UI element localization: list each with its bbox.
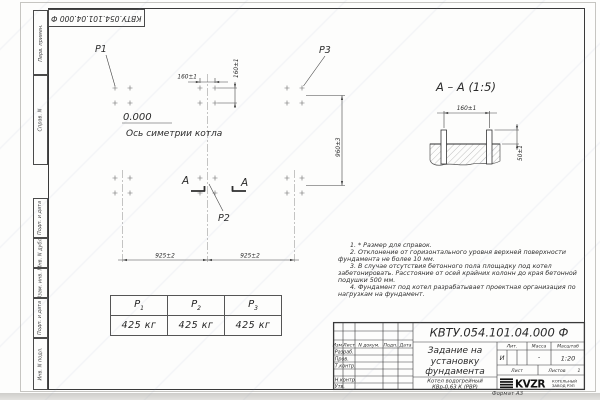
- side-label: Перв. примен.: [38, 24, 44, 62]
- svg-text:925±2: 925±2: [240, 254, 260, 260]
- svg-text:Задание на: Задание на: [428, 346, 483, 356]
- side-label: Подп. и дата: [38, 201, 44, 235]
- kvzr-logo: KVZR КОТЕЛЬНЫЙ ЗАВОД РЭП: [500, 378, 577, 390]
- load-value-p3: 425 кг: [225, 316, 282, 336]
- note-3: 3. В случае отсутствия бетонного пола пл…: [338, 263, 585, 284]
- side-label: Инв. N дубл.: [38, 238, 44, 268]
- note-2: 2. Отклонение от горизонтального уровня …: [338, 249, 585, 263]
- svg-text:фундамента: фундамента: [425, 367, 485, 377]
- side-box-vzam-inv: Взам. инв. N: [33, 268, 48, 298]
- dim-row-spacing: 960±3: [306, 96, 345, 186]
- dim-column-span: 925±2 925±2: [118, 254, 299, 262]
- lit-mass-scale: Лит. Масса Масштаб И - 1:20: [500, 344, 580, 363]
- load-value-p2: 425 кг: [168, 316, 225, 336]
- side-box-inv-dubl: Инв. N дубл.: [33, 238, 48, 268]
- svg-text:Листов: Листов: [547, 368, 565, 374]
- side-label: Подп. и дата: [38, 301, 44, 335]
- svg-text:Лист: Лист: [342, 342, 355, 348]
- side-box-podp-data-2: Подп. и дата: [33, 298, 48, 338]
- svg-text:установку: установку: [430, 357, 480, 367]
- load-col-p2: Р2: [168, 296, 225, 316]
- section-title: А – А (1:5): [435, 80, 496, 94]
- svg-text:50±1: 50±1: [518, 145, 524, 161]
- side-label: Взам. инв. N: [38, 268, 44, 298]
- dim-section-spacing: 160±1: [437, 106, 497, 128]
- dim-bolt-spacing-x: 160±1: [177, 75, 228, 84]
- kvzr-logo-icon: [500, 378, 513, 388]
- load-table-header-row: Р1 Р2 Р3: [111, 296, 282, 316]
- svg-text:Р1: Р1: [95, 44, 107, 55]
- svg-text:160±1: 160±1: [177, 75, 197, 81]
- anchor-bolt-marks: [113, 86, 305, 196]
- side-label: Справ. N: [38, 109, 44, 132]
- svg-text:Масштаб: Масштаб: [557, 344, 579, 350]
- signature-roles: Разраб. Пров. Т.контр. Н.контр. Утв.: [335, 349, 356, 390]
- axis-centerlines: [123, 74, 295, 262]
- dim-bolt-spacing-y: 160±1: [218, 58, 241, 108]
- svg-text:Р3: Р3: [319, 45, 331, 56]
- section-cut-marks: А А: [181, 175, 248, 192]
- svg-text:Дата: Дата: [399, 342, 412, 348]
- load-leader-p2: Р2: [209, 184, 230, 224]
- side-box-podp-data-1: Подп. и дата: [33, 198, 48, 238]
- svg-text:Масса: Масса: [532, 344, 547, 350]
- svg-text:Лист: Лист: [510, 368, 523, 374]
- svg-text:И: И: [500, 354, 505, 362]
- svg-text:160±1: 160±1: [234, 58, 240, 78]
- drawing-sheet: КВТУ.054.101.04.000 Ф Перв. примен. Спра…: [0, 0, 600, 400]
- svg-text:Лит.: Лит.: [506, 344, 518, 350]
- load-table: Р1 Р2 Р3 425 кг 425 кг 425 кг: [110, 295, 282, 336]
- load-col-p1: Р1: [111, 296, 168, 316]
- kvzr-logo-tagline: КОТЕЛЬНЫЙ ЗАВОД РЭП: [552, 379, 577, 389]
- side-box-perv-primen: Перв. примен.: [33, 10, 48, 75]
- title-block: КВТУ.054.101.04.000 Ф Изм. Лист N докум.…: [333, 322, 585, 390]
- svg-text:Т.контр.: Т.контр.: [335, 363, 356, 369]
- load-leader-p3: Р3: [304, 45, 331, 86]
- svg-text:А: А: [240, 177, 248, 189]
- load-col-p3: Р3: [225, 296, 282, 316]
- format-note: Формат А3: [430, 391, 585, 397]
- top-stamp: КВТУ.054.101.04.000 Ф: [48, 9, 145, 27]
- revision-header-row: Изм. Лист N докум. Подп. Дата: [333, 342, 412, 348]
- sheet-row: Лист Листов 1: [510, 368, 580, 374]
- svg-text:Н.контр.: Н.контр.: [335, 377, 356, 383]
- svg-text:Р2: Р2: [218, 213, 230, 224]
- svg-text:Изм.: Изм.: [333, 342, 344, 348]
- axis-of-symmetry-label: Ось симетрии котла: [126, 129, 222, 139]
- svg-text:Утв.: Утв.: [335, 384, 345, 390]
- svg-text:-: -: [538, 353, 541, 361]
- side-label: Инв. N подл.: [38, 347, 44, 380]
- note-4: 4. Фундамент под котел разрабатывает про…: [338, 284, 585, 298]
- side-box-inv-podl: Инв. N подл.: [33, 338, 48, 390]
- svg-text:Пров.: Пров.: [335, 356, 349, 362]
- svg-text:925±2: 925±2: [155, 254, 175, 260]
- kvzr-logo-text: KVZR: [515, 379, 545, 391]
- drawing-title: Задание на установку фундамента: [425, 346, 485, 377]
- load-table-value-row: 425 кг 425 кг 425 кг: [111, 316, 282, 336]
- level-mark: 0.000: [123, 112, 152, 123]
- svg-text:N докум.: N докум.: [358, 342, 379, 348]
- svg-text:Подп.: Подп.: [384, 342, 398, 348]
- section-view-a-a: А – А (1:5) 160±1 50±1: [420, 70, 545, 180]
- svg-text:960±3: 960±3: [336, 137, 342, 157]
- technical-notes: 1. * Размер для справок. 2. Отклонение о…: [338, 242, 585, 298]
- anchor-bolt-left: [441, 130, 447, 164]
- svg-text:Разраб.: Разраб.: [335, 349, 354, 355]
- svg-text:1: 1: [578, 368, 581, 374]
- svg-text:ЗАВОД РЭП: ЗАВОД РЭП: [552, 383, 575, 388]
- top-stamp-text: КВТУ.054.101.04.000 Ф: [51, 14, 142, 23]
- svg-text:А: А: [181, 175, 189, 187]
- svg-text:КВр-0,63 К (РВР): КВр-0,63 К (РВР): [432, 385, 478, 391]
- svg-text:160±1: 160±1: [457, 106, 477, 112]
- svg-text:1:20: 1:20: [561, 355, 576, 363]
- anchor-bolt-right: [487, 130, 493, 164]
- load-value-p1: 425 кг: [111, 316, 168, 336]
- load-leader-p1: Р1: [95, 44, 115, 86]
- note-1: 1. * Размер для справок.: [338, 242, 585, 249]
- side-box-sprav-n: Справ. N: [33, 75, 48, 165]
- product-name: Котел водогрейный КВр-0,63 К (РВР): [427, 379, 483, 391]
- doc-number: КВТУ.054.101.04.000 Ф: [430, 326, 569, 340]
- foundation-plan-view: 160±1 160±1 960±3 925±2 925±2 0.000: [60, 30, 360, 270]
